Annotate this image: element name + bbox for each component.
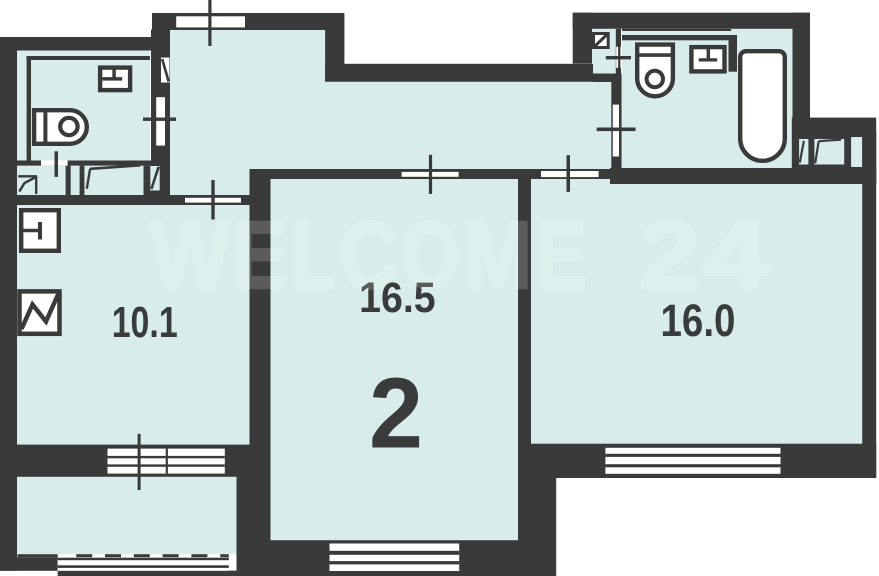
svg-text:4: 4 [704,202,769,309]
svg-text:2: 2 [369,358,423,470]
svg-text:C: C [339,202,398,309]
svg-text:E: E [536,202,587,309]
svg-text:W: W [150,202,230,309]
svg-text:2: 2 [639,202,700,309]
svg-text:E: E [234,202,288,309]
svg-text:M: M [463,202,532,309]
svg-text:L: L [292,202,336,309]
svg-text:O: O [401,202,460,309]
